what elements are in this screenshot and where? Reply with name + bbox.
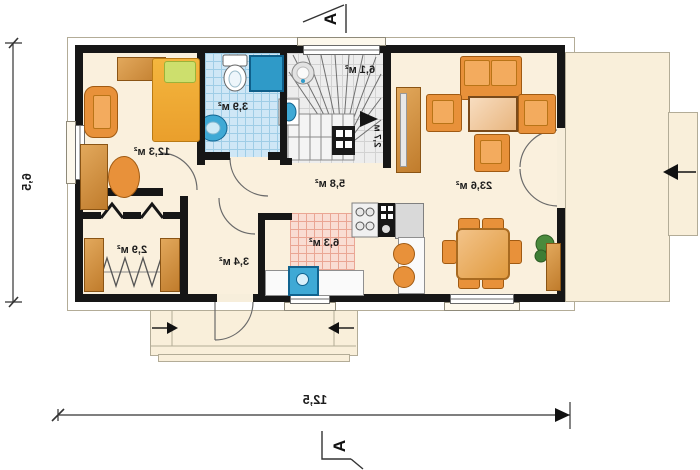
bedroom-area-label: 12,3 м²: [134, 146, 170, 158]
sofa-cushion: [464, 60, 490, 86]
fridge: [395, 203, 424, 239]
section-marker-top: A: [321, 13, 341, 25]
wall: [378, 45, 565, 53]
stair-hall-area-label: 6,1 м²: [345, 64, 375, 76]
kitchen-area-label: 6,3 м²: [309, 237, 339, 249]
oven-unit: [378, 203, 395, 237]
armchair-seat: [93, 95, 111, 129]
entry-door-opening: [217, 294, 253, 302]
window: [303, 45, 380, 55]
wall: [280, 158, 292, 165]
coffee-table: [468, 96, 518, 132]
corridor-area-label: 3,4 м²: [219, 256, 249, 268]
overall-width-label: 12,5: [303, 393, 327, 407]
bar-stool: [393, 243, 415, 265]
cooktop-burners: [352, 203, 378, 237]
armchair-seat: [524, 100, 548, 126]
terrace-arrow: [663, 164, 696, 180]
section-marker-bottom: A: [330, 440, 350, 452]
bathroom-area-label: 3,9 м²: [218, 101, 248, 113]
boiler-unit: [332, 126, 355, 155]
porch-arrows: [150, 310, 356, 346]
hall-area-label: 5,8 м²: [315, 178, 345, 190]
toilet: [223, 55, 247, 91]
dining-chair: [442, 240, 457, 264]
wall: [123, 212, 141, 219]
wall: [75, 53, 83, 125]
sofa-cushion: [491, 60, 517, 86]
stair-width-label: 2,7 м: [372, 125, 383, 148]
shower: [249, 55, 284, 92]
armchair-seat: [432, 100, 454, 124]
desk-chair: [108, 156, 140, 198]
wall: [383, 53, 391, 168]
wardrobe-area-label: 2,9 м²: [117, 244, 147, 256]
plant-pot: [546, 243, 561, 291]
bed-pillow: [164, 61, 196, 83]
terrace-door-opening: [557, 128, 565, 208]
wall: [75, 294, 217, 302]
desk: [80, 144, 108, 210]
wall: [557, 53, 565, 128]
wall: [197, 152, 230, 160]
wardrobe-cabinet: [84, 238, 104, 292]
wall: [512, 294, 565, 302]
wall: [258, 215, 265, 294]
cabinet-door-stripe: [400, 93, 407, 167]
dining-table: [456, 228, 510, 280]
wall: [180, 196, 188, 294]
washbasin: [292, 62, 314, 84]
kitchen-sink-basin: [296, 273, 309, 286]
armchair-seat: [480, 140, 502, 164]
wall: [163, 212, 180, 219]
wardrobe-cabinet: [160, 238, 180, 292]
overall-height-label: 6,5: [20, 173, 34, 190]
bar-stool: [393, 266, 415, 288]
wall: [75, 45, 303, 53]
window: [450, 294, 514, 304]
floor-plan-canvas: 12,3 м² 3,9 м² 6,1 м² 2,7 м 5,8 м² 2,9 м…: [0, 0, 700, 470]
wall: [83, 212, 101, 219]
living-room-area-label: 23,6 м²: [456, 180, 492, 192]
